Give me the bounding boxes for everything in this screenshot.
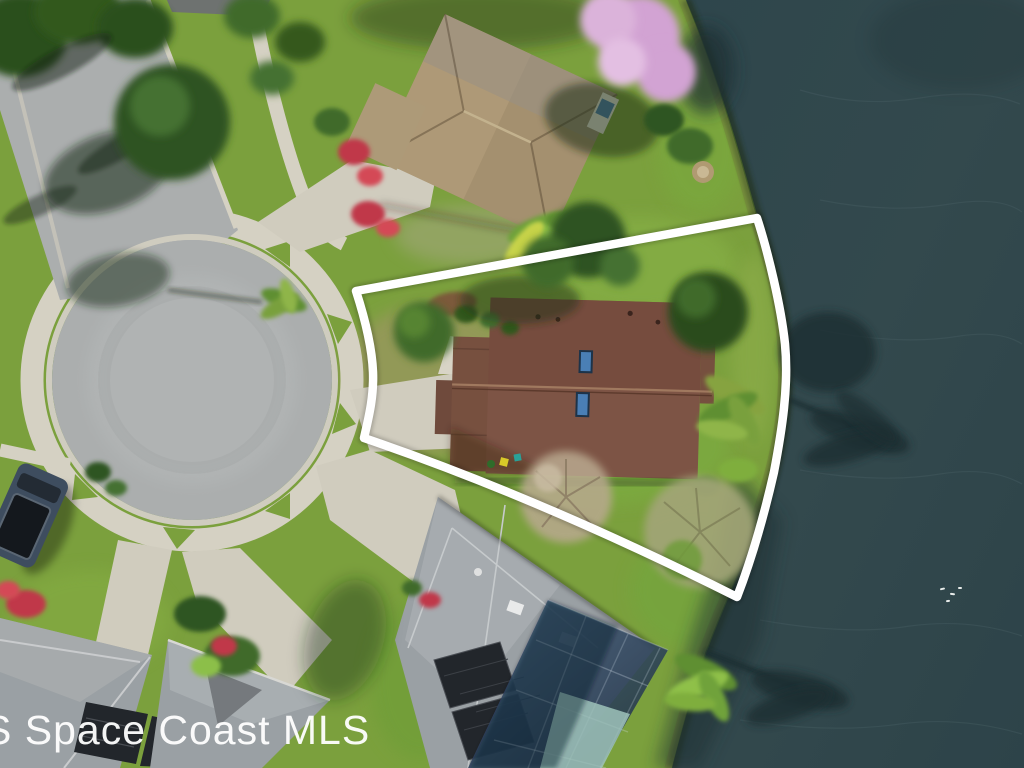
tree-shadow (780, 312, 876, 392)
watermark-text: S Space Coast MLS (0, 707, 370, 753)
shrub (402, 580, 422, 596)
canopy-highlight (398, 306, 430, 338)
pink-tree-highlight (598, 38, 646, 86)
bougainvillea (338, 139, 370, 165)
tree-canopy (275, 22, 325, 62)
roof-vent (474, 568, 482, 576)
tree-canopy (600, 246, 640, 286)
bougainvillea (211, 636, 237, 656)
shrub (314, 108, 350, 136)
trash-bin (487, 460, 495, 468)
bougainvillea (357, 166, 383, 186)
bougainvillea (376, 219, 400, 237)
bird (958, 587, 962, 589)
shrub (85, 462, 111, 482)
canopy (174, 596, 226, 632)
canopy-highlight (676, 278, 716, 318)
yard-toy (514, 453, 522, 461)
scene: S Space Coast MLS (0, 0, 1024, 768)
shrub (105, 480, 127, 496)
bougainvillea (419, 592, 441, 608)
tree-canopy (97, 0, 173, 58)
bare-highlight (534, 464, 562, 492)
shrub (667, 128, 713, 164)
fire-pit-center (697, 166, 709, 178)
shrub (718, 458, 758, 482)
canopy-highlight (130, 76, 190, 136)
tree-canopy (250, 61, 294, 95)
pavement-highlight (87, 275, 297, 485)
bare-tree (644, 476, 756, 588)
skylight (577, 394, 588, 415)
pink-tree-canopy (636, 42, 696, 102)
frond (191, 655, 221, 677)
skylight (581, 352, 592, 371)
aerial-photo: S Space Coast MLS (0, 0, 1024, 768)
